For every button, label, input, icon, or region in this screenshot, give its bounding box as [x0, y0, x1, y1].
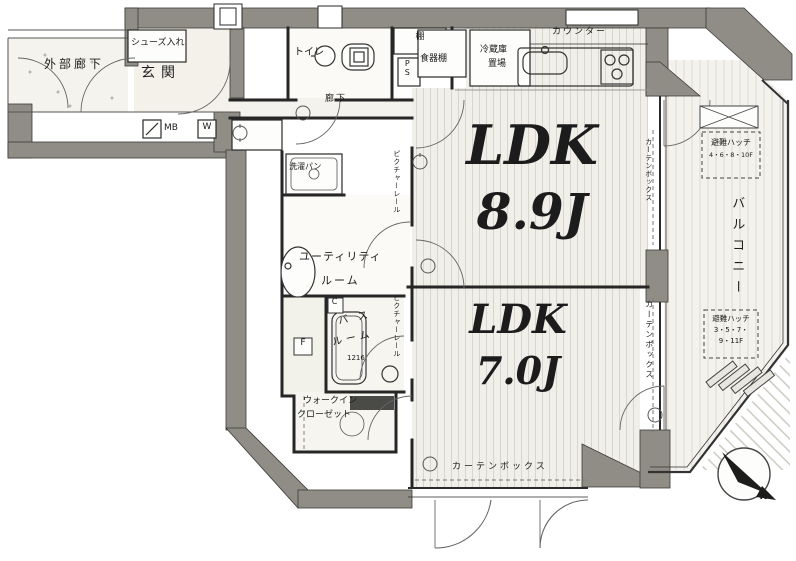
label-ldk2-size: 7.0J	[448, 350, 588, 392]
label-balcony: バルコニー	[729, 196, 743, 301]
label-utility-line2: ルーム	[321, 275, 360, 287]
label-shoe-storage: シューズ入れ	[131, 39, 185, 49]
label-toilet: トイレ	[294, 47, 324, 58]
label-compass-north: N	[760, 491, 768, 502]
label-picture-rail-1: ピクチャーレール	[392, 150, 400, 214]
label-hatch2-floors-line1: 3・5・7・	[703, 327, 759, 335]
label-hatch2-title: 避難ハッチ	[703, 315, 759, 323]
label-curtain-box-right-top: カーテンボックス	[644, 138, 652, 202]
label-hatch1-floors: 4・6・8・10F	[699, 152, 763, 159]
label-entrance: 玄関	[141, 66, 181, 81]
label-hatch1-title: 避難ハッチ	[701, 139, 761, 148]
label-fridge-line2: 置場	[488, 60, 506, 70]
label-ldk1-name: LDK	[442, 116, 622, 175]
label-c-box: C	[327, 298, 342, 307]
label-mb: MB	[164, 124, 178, 134]
label-curtain-box-right-bottom: カーテンボックス	[644, 300, 653, 380]
label-water-meter: W	[198, 123, 216, 133]
label-wic-line2: クローゼット	[297, 411, 351, 421]
label-laundry-pan: 洗濯パン	[289, 163, 321, 172]
label-counter: カウンター	[552, 28, 607, 38]
label-corridor: 廊下	[325, 95, 347, 105]
label-pipe-space: PS	[402, 59, 411, 77]
label-ldk1-size: 8.9J	[442, 184, 622, 239]
label-dish-shelf: 食器棚	[420, 55, 447, 65]
label-ldk2-name: LDK	[448, 298, 588, 342]
label-bath-size: 1216	[347, 355, 365, 363]
label-exterior-corridor: 外部廊下	[44, 58, 104, 71]
label-picture-rail-2: ピクチャーレール	[392, 294, 400, 358]
floorplan-drawing	[0, 0, 796, 561]
label-fridge-line1: 冷蔵庫	[480, 46, 507, 56]
floor-plan: 外部廊下 シューズ入れ 玄関 MB W トイレ 棚 PS 食器棚 冷蔵庫 置場 …	[0, 0, 796, 561]
label-fan-box: F	[294, 339, 312, 349]
label-hatch2-floors-line2: 9・11F	[703, 338, 759, 346]
toilet-floor	[288, 28, 392, 100]
label-wic-line1: ウォークイン	[303, 397, 357, 407]
label-curtain-box-bottom: カーテンボックス	[452, 463, 548, 473]
label-shelf: 棚	[394, 33, 446, 43]
label-utility-line1: ユーティリティ	[299, 251, 382, 263]
